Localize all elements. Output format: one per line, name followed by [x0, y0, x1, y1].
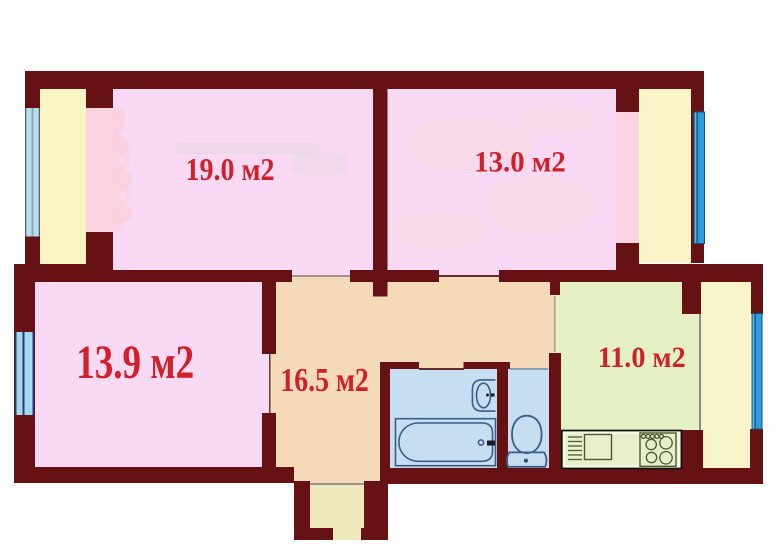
- svg-text:16.5 м2: 16.5 м2: [280, 362, 369, 399]
- svg-text:13.9 м2: 13.9 м2: [76, 336, 194, 389]
- svg-text:11.0 м2: 11.0 м2: [598, 342, 686, 374]
- svg-text:19.0 м2: 19.0 м2: [186, 152, 275, 187]
- svg-text:13.0 м2: 13.0 м2: [474, 146, 566, 178]
